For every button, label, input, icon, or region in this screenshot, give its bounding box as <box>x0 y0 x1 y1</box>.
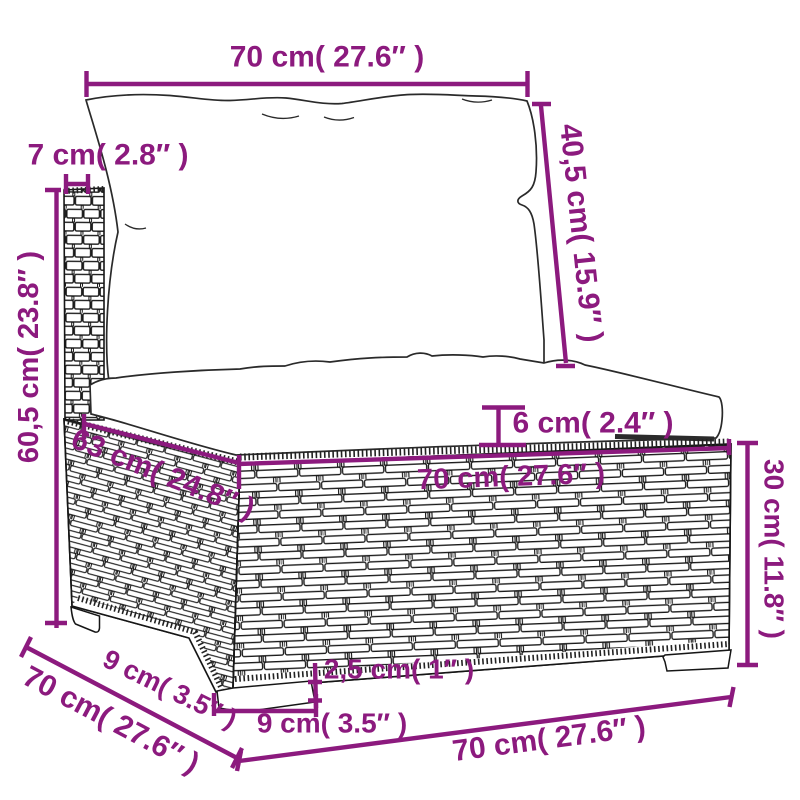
svg-text:2,5 cm( 1″ ): 2,5 cm( 1″ ) <box>324 654 474 685</box>
svg-text:6 cm( 2.4″ ): 6 cm( 2.4″ ) <box>512 407 673 440</box>
svg-text:70 cm( 27.6″ ): 70 cm( 27.6″ ) <box>230 41 424 74</box>
svg-text:9 cm( 3.5″ ): 9 cm( 3.5″ ) <box>257 708 407 739</box>
svg-text:70 cm( 27.6″ ): 70 cm( 27.6″ ) <box>416 458 605 497</box>
svg-text:60,5 cm( 23.8″ ): 60,5 cm( 23.8″ ) <box>13 251 45 463</box>
svg-text:30 cm( 11.8″ ): 30 cm( 11.8″ ) <box>759 459 790 639</box>
svg-text:7 cm( 2.8″ ): 7 cm( 2.8″ ) <box>27 139 188 172</box>
